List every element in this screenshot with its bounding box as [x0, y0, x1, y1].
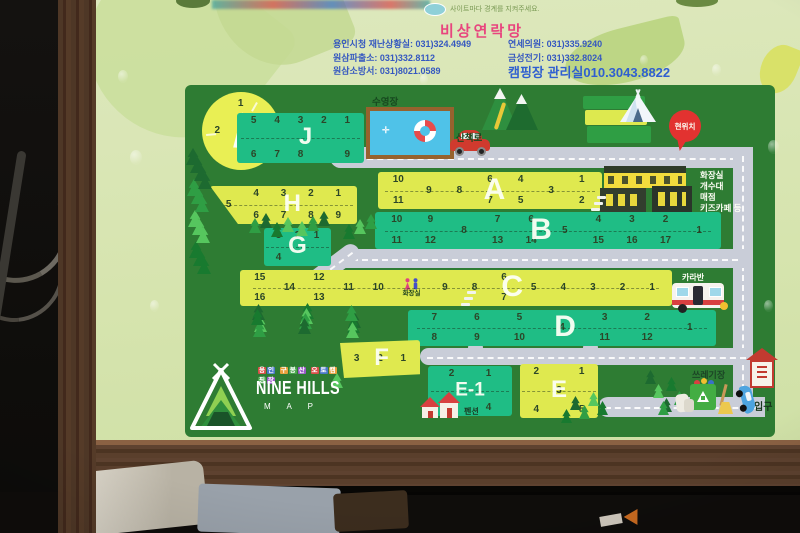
pension-icon: 펜션	[420, 394, 488, 428]
white-sack	[81, 460, 209, 533]
contact-label: 캠핑장 관리실	[508, 65, 583, 80]
car-wheel	[455, 147, 464, 156]
ray-line	[251, 102, 258, 112]
logo-subtitle-char: 오	[311, 367, 319, 374]
contact-phone: 031)335.9240	[547, 39, 603, 49]
site-number: 1	[336, 189, 342, 199]
section-letter: D	[554, 312, 576, 342]
road-dash-line	[352, 259, 738, 261]
site-number: 8	[298, 150, 304, 160]
building	[652, 186, 692, 212]
contact-label: 용인시청 재난상황실	[333, 39, 416, 49]
logo-subtitle-char: 구	[280, 367, 288, 374]
section-letter: B	[530, 214, 552, 244]
trash-label: 쓰레기장	[692, 368, 725, 381]
caution-note: 사이트마다 경계를 지켜주세요.	[450, 4, 540, 14]
contact-list-right: 연세의원031)335.9240 금성전기031)332.8024	[508, 38, 602, 65]
tent-icon	[620, 94, 656, 122]
mountain-snowcap	[516, 94, 527, 104]
booth-sign-line	[757, 371, 767, 373]
site-number: 2	[308, 189, 314, 199]
contact-phone: 031)332.8112	[380, 53, 435, 63]
site-column: 1	[392, 342, 415, 376]
site-number: 5	[518, 196, 524, 206]
recycle-symbol	[697, 391, 709, 402]
current-location-pin: 현위치	[663, 110, 709, 156]
site-number: 4	[253, 189, 259, 199]
mountain-snowcap	[494, 88, 506, 99]
contact-list-left: 용인시청 재난상황실031)324.4949 원삼파출소031)332.8112…	[333, 38, 471, 79]
terrace-band	[587, 126, 651, 143]
contact-label: 금성전기	[508, 53, 547, 63]
site-number: 8	[432, 333, 438, 343]
contact-phone: 010.3043.8822	[583, 65, 670, 80]
site-number: 1	[238, 98, 244, 109]
building-windows	[608, 176, 682, 184]
caravan-label: 카라반	[682, 272, 704, 283]
site-number: 2	[644, 313, 650, 323]
site-number: 1	[401, 354, 407, 364]
site-number: 5	[517, 313, 523, 323]
site-number: 2	[579, 196, 585, 206]
flower-icon	[720, 302, 728, 310]
caravan-wheel	[678, 304, 687, 313]
contact-line: 연세의원031)335.9240	[508, 38, 602, 52]
lifering-icon	[414, 120, 436, 142]
booth-sign-line	[757, 366, 767, 368]
nine-hills-logo: 용인 구봉산 오토캠핑장 NINE HILLS M A P	[188, 356, 340, 434]
map-section-D: 786951043112121D	[408, 310, 716, 346]
section-letter: G	[288, 234, 307, 258]
site-number: 2	[449, 369, 455, 379]
stairs-icon	[462, 291, 476, 309]
map-section-F: 321F	[340, 340, 420, 378]
wood-post	[58, 0, 96, 533]
site-number: 10	[514, 333, 525, 343]
site-number: 10	[393, 175, 404, 185]
site-number: 9	[474, 333, 480, 343]
stairs-icon	[592, 196, 606, 214]
site-number: 1	[579, 367, 585, 377]
restroom-label: 화장실	[403, 291, 421, 298]
water-droplet	[118, 70, 128, 83]
wood-debris	[333, 490, 409, 532]
house-roof	[438, 392, 460, 403]
photo-of-campground-map-sign: 사이트마다 경계를 지켜주세요. 비상연락망 용인시청 재난상황실031)324…	[0, 0, 800, 533]
trash-bag	[684, 399, 694, 412]
building	[600, 188, 646, 212]
facility-label: 매점	[700, 192, 772, 203]
water-droplet	[150, 300, 159, 312]
booth-sign-line	[757, 376, 767, 378]
site-number: 9	[428, 215, 434, 225]
caravan-icon: 카라반	[670, 272, 728, 314]
caravan-window	[676, 287, 689, 297]
site-number: 2	[534, 367, 540, 377]
site-number: 12	[642, 333, 653, 343]
building-roof	[604, 166, 686, 173]
building-windows	[606, 194, 640, 206]
section-letter: E	[551, 378, 567, 402]
contact-line: 원삼소방서031)8021.0589	[333, 65, 471, 79]
house-door	[428, 411, 433, 418]
contact-label: 원삼소방서	[333, 66, 380, 76]
site-number: 13	[313, 293, 324, 303]
booth-roof	[746, 348, 778, 360]
teepee-logo-icon	[188, 360, 254, 432]
facility-label: 화장실	[700, 170, 772, 181]
site-number: 4	[596, 215, 602, 225]
trail-icon: 산책로	[454, 88, 540, 142]
tent-badge-icon	[424, 3, 446, 16]
site-number: 4	[518, 175, 524, 185]
caravan-window	[709, 287, 722, 297]
site-number: 1	[345, 116, 351, 126]
pool-ladder-icon: ✛	[382, 125, 392, 135]
section-letter: H	[284, 192, 301, 216]
section-letter: F	[374, 346, 389, 370]
water-droplet	[768, 140, 779, 154]
site-number: 9	[336, 211, 342, 221]
section-letter: A	[484, 174, 506, 204]
logo-subtitle-char	[307, 367, 311, 374]
gray-tarp	[197, 484, 341, 533]
logo-subtitle-char: 산	[298, 367, 306, 374]
pin-balloon: 현위치	[669, 110, 701, 142]
site-number: 5	[251, 116, 257, 126]
section-letter: J	[299, 125, 312, 149]
building-windows	[658, 192, 686, 206]
facility-label-list: 화장실 개수대 매점 키즈카페 등	[700, 170, 772, 214]
site-number: 17	[660, 236, 671, 246]
site-number: 7	[495, 215, 501, 225]
site-number: 1	[314, 231, 320, 241]
water-droplet	[712, 64, 721, 76]
contact-phone: 031)324.4949	[416, 39, 472, 49]
caravan-door	[693, 286, 703, 305]
swimming-pool-icon: 수영장 ✛	[366, 94, 450, 156]
site-number: 4	[274, 116, 280, 126]
site-number: 1	[579, 175, 585, 185]
contact-phone: 031)332.8024	[547, 53, 603, 63]
site-number: 3	[354, 354, 360, 364]
site-number: 3	[629, 215, 635, 225]
contact-phone: 031)8021.0589	[380, 66, 441, 76]
facility-label: 개수대	[700, 181, 772, 192]
site-number: 15	[254, 273, 265, 283]
contact-label: 연세의원	[508, 39, 547, 49]
site-number: 7	[432, 313, 438, 323]
site-number: 2	[321, 116, 327, 126]
site-number: 3	[602, 313, 608, 323]
logo-subtitle-char: 용	[258, 367, 266, 374]
road-dash-line	[427, 357, 746, 359]
recycle-symbol-hole	[701, 396, 705, 400]
section-letter: C	[501, 272, 523, 302]
map-section-A: 1011986745312A	[378, 172, 602, 209]
site-number: 16	[254, 293, 265, 303]
pension-label: 펜션	[464, 406, 479, 417]
map-section-J: 564738219J	[237, 113, 364, 163]
map-section-B: 1011912871361454153162171B	[375, 212, 721, 249]
house-roof	[420, 397, 440, 407]
site-number: 10	[391, 215, 402, 225]
logo-title: NINE HILLS	[256, 378, 340, 399]
site-column: 3	[345, 342, 368, 376]
contact-line: 용인시청 재난상황실031)324.4949	[333, 38, 471, 52]
water-droplet	[130, 150, 142, 165]
site-number: 6	[251, 150, 257, 160]
site-number: 11	[599, 333, 610, 343]
map-section-C: 15161412131110화장실986754321C	[240, 270, 672, 306]
site-number: 13	[492, 236, 503, 246]
contact-line: 원삼파출소031)332.8112	[333, 52, 471, 66]
site-number: 15	[593, 236, 604, 246]
logo-subtitle-char: 캠	[329, 367, 337, 374]
lifering-hole	[420, 126, 430, 136]
site-number: 16	[626, 236, 637, 246]
water-droplet	[420, 74, 428, 85]
pool-water: ✛	[366, 107, 454, 159]
house-door	[447, 408, 452, 418]
site-number: 11	[393, 196, 404, 206]
site-number: 7	[274, 150, 280, 160]
current-location-label: 현위치	[675, 121, 696, 132]
site-number: 11	[392, 236, 403, 246]
row-divider	[253, 288, 659, 289]
water-droplet	[764, 300, 773, 312]
site-number: 12	[313, 273, 324, 283]
facility-label: 키즈카페 등	[700, 203, 772, 214]
site-number: 6	[474, 313, 480, 323]
car-wheel	[477, 147, 486, 156]
site-number: 12	[425, 236, 436, 246]
site-number: 9	[345, 150, 351, 160]
logo-subtitle-char: 인	[267, 367, 275, 374]
trail-label: 산책로	[456, 130, 482, 144]
site-number: 4	[276, 253, 282, 263]
pool-label: 수영장	[372, 94, 398, 108]
facility-buildings	[600, 162, 694, 214]
logo-subtitle-char: 봉	[289, 367, 297, 374]
cropped-text-strip	[212, 0, 430, 9]
road	[420, 348, 753, 365]
leaf-decoration	[676, 0, 718, 7]
contact-label: 원삼파출소	[333, 53, 380, 63]
building	[604, 166, 686, 188]
road	[345, 249, 745, 268]
site-number: 4	[534, 405, 540, 415]
logo-caption: M A P	[264, 402, 320, 411]
water-droplet	[640, 55, 648, 66]
site-number: 1	[486, 369, 492, 379]
site-number: 2	[663, 215, 669, 225]
logo-subtitle-char: 토	[320, 367, 328, 374]
